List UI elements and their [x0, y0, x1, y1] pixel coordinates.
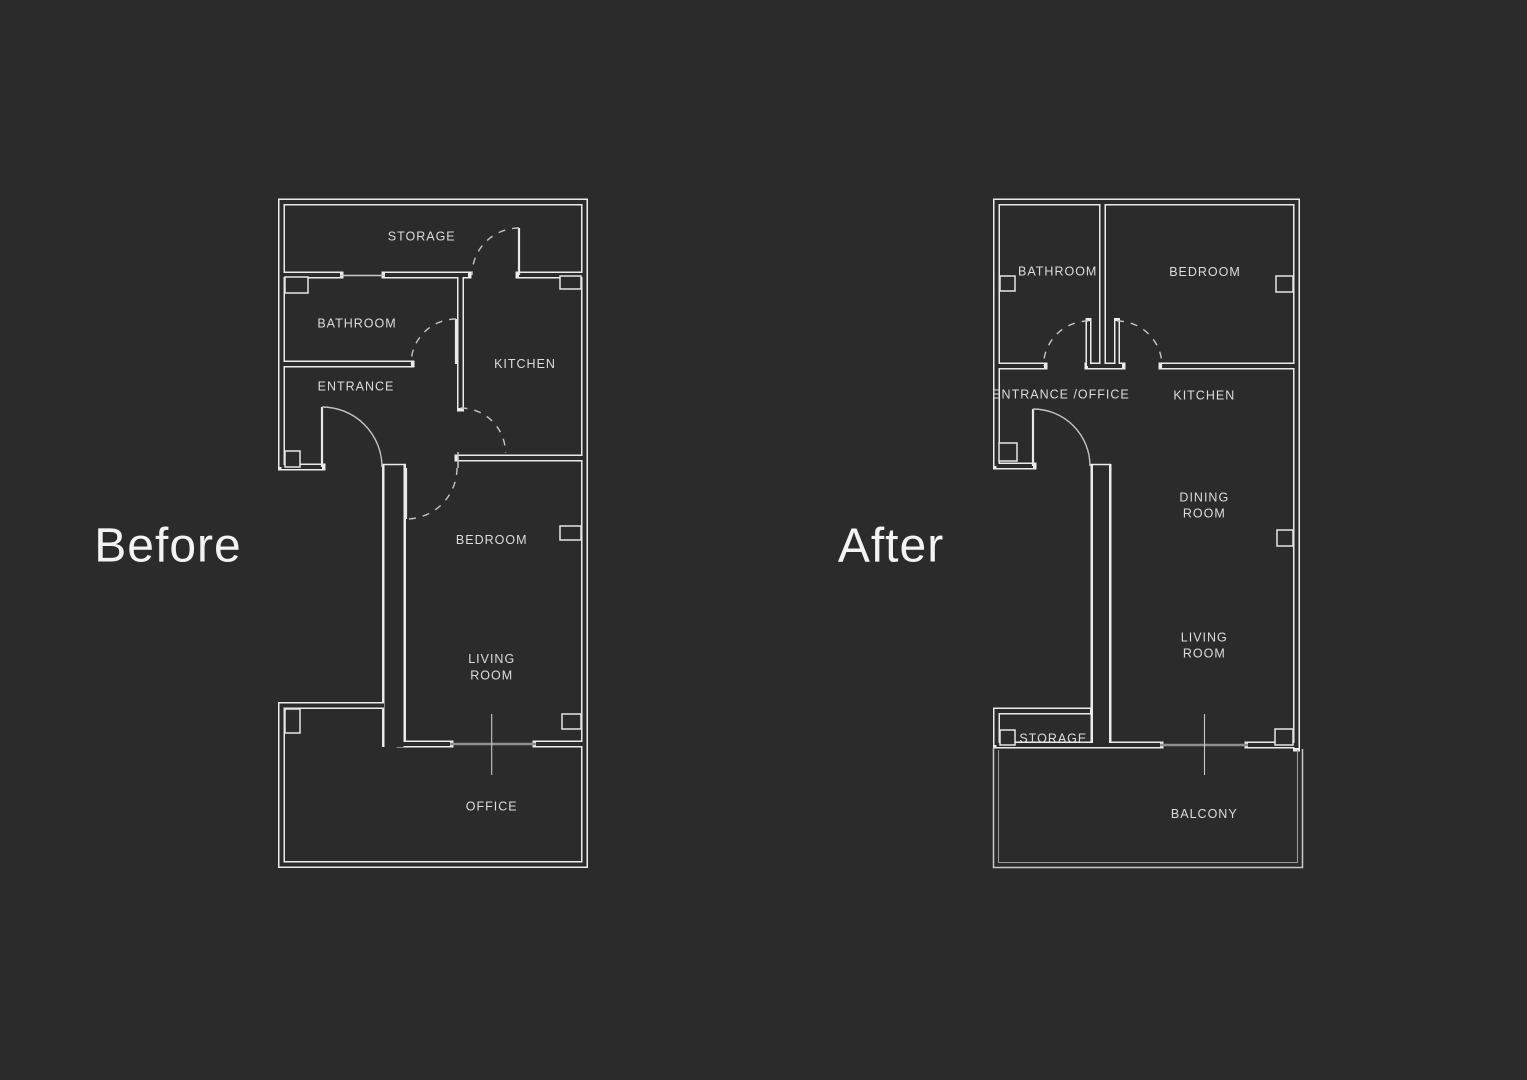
after-bathroom-door-swing-arc — [1044, 321, 1089, 366]
room-label-office: OFFICE — [466, 800, 518, 814]
after-outer-wall — [997, 202, 1297, 748]
before-plan-walls-gap-pass — [282, 202, 585, 865]
before-plan-walls — [282, 202, 585, 865]
before-bedroom-window-notch — [560, 526, 581, 540]
floorplan-comparison-canvas: STORAGE BATHROOM ENTRANCE KITCHEN BEDROO… — [0, 0, 1527, 1080]
room-label-living-room-line2: ROOM — [470, 669, 513, 683]
room-label-kitchen: KITCHEN — [1173, 389, 1235, 403]
room-label-storage: STORAGE — [1019, 731, 1087, 745]
after-entrance-bottomleft-notch — [999, 443, 1017, 461]
before-kitchen-topright-notch — [560, 276, 581, 289]
room-label-bedroom: BEDROOM — [1169, 265, 1241, 279]
before-thin-details — [340, 276, 536, 776]
room-label-living-room-line2: ROOM — [1183, 646, 1226, 660]
room-label-bedroom: BEDROOM — [456, 533, 528, 547]
room-label-bathroom: BATHROOM — [317, 316, 396, 330]
after-balcony-outline-outer — [994, 748, 1303, 868]
room-label-living-room-line1: LIVING — [1181, 631, 1228, 645]
before-entrance-door-swing-arc — [322, 407, 382, 467]
room-label-bathroom: BATHROOM — [1018, 265, 1097, 279]
room-label-entrance: ENTRANCE — [318, 380, 395, 394]
after-storage-left-notch — [1000, 730, 1015, 745]
after-balcony-outline-inner — [999, 750, 1298, 863]
before-plan: STORAGE BATHROOM ENTRANCE KITCHEN BEDROO… — [94, 202, 584, 865]
before-wall-notches — [285, 276, 581, 733]
before-bathroom-left-notch — [285, 277, 308, 293]
room-label-kitchen: KITCHEN — [494, 357, 556, 371]
after-heading: After — [838, 520, 944, 573]
after-bedroom-door-swing-arc — [1117, 321, 1162, 366]
room-label-dining-room-line2: ROOM — [1183, 506, 1226, 520]
before-living-bottomright-notch — [562, 714, 581, 729]
after-wall-notches — [999, 276, 1293, 745]
after-bedroom-right-notch — [1276, 276, 1293, 292]
before-room-labels: STORAGE BATHROOM ENTRANCE KITCHEN BEDROO… — [317, 229, 556, 813]
after-entrance-door-swing-arc — [1033, 409, 1090, 466]
after-living-bottomright-notch — [1275, 729, 1293, 745]
before-entrance-bottomleft-notch — [285, 451, 300, 467]
before-heading: Before — [94, 520, 241, 573]
before-storage-door-swing-arc — [472, 228, 519, 275]
room-label-storage: STORAGE — [388, 229, 456, 243]
after-plan-walls — [997, 202, 1297, 748]
after-plan: BATHROOM BEDROOM ENTRANCE /OFFICE KITCHE… — [838, 202, 1303, 868]
before-office-topleft-notch — [285, 709, 300, 733]
room-label-living-room-line1: LIVING — [468, 652, 515, 666]
after-dining-right-notch — [1277, 530, 1293, 546]
room-label-balcony: BALCONY — [1171, 807, 1238, 821]
after-bathroom-left-notch — [1000, 276, 1015, 291]
before-bedroom-door-swing-arc — [406, 468, 457, 519]
before-kitchen-door-swing-arc — [461, 408, 506, 453]
room-label-entrance-office: ENTRANCE /OFFICE — [992, 387, 1130, 401]
before-outer-wall — [282, 202, 585, 865]
after-plan-walls-gap-pass — [997, 202, 1297, 748]
after-thin-details — [994, 465, 1303, 868]
before-bathroom-door-swing-arc — [411, 319, 456, 364]
room-label-dining-room-line1: DINING — [1179, 490, 1229, 504]
